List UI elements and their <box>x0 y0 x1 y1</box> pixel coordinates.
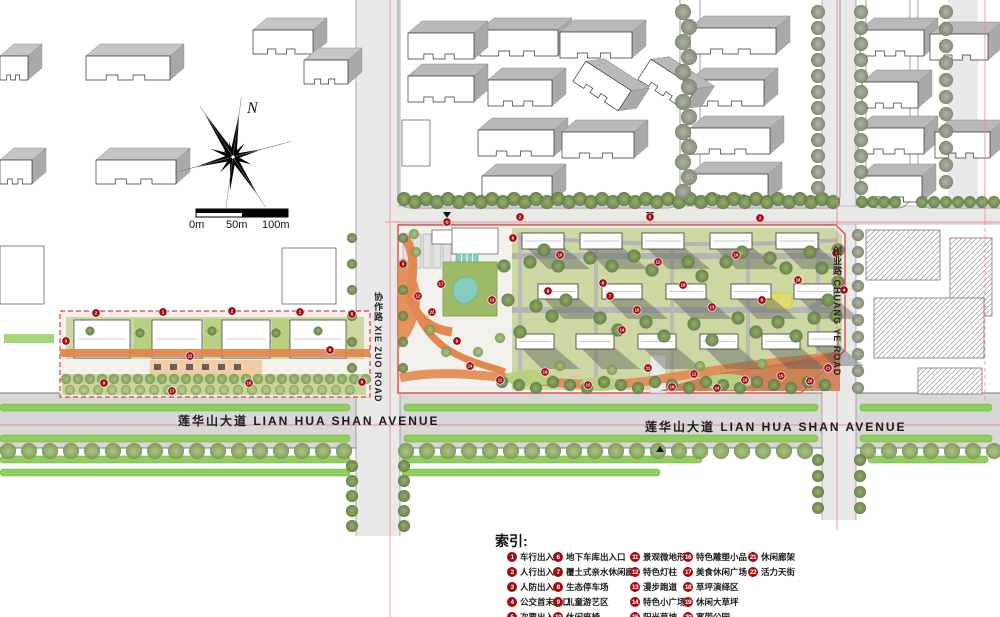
plan-marker: 10 <box>245 379 253 387</box>
road-label-lianhuashan-left: 莲华山大道 LIAN HUA SHAN AVENUE <box>178 412 440 429</box>
plan-marker: 6 <box>758 296 766 304</box>
road-label-xiezuo: 协作路 XIE ZUO ROAD <box>372 292 385 403</box>
svg-text:1: 1 <box>162 310 165 316</box>
svg-text:17: 17 <box>170 389 175 394</box>
plan-marker: 12 <box>654 258 662 266</box>
plan-marker: 7 <box>606 292 614 300</box>
plan-marker: 18 <box>794 276 802 284</box>
plan-marker: 17 <box>437 280 445 288</box>
svg-text:14: 14 <box>468 364 473 369</box>
svg-text:2: 2 <box>759 216 762 222</box>
svg-text:10: 10 <box>247 381 252 386</box>
plan-marker: 19 <box>541 368 549 376</box>
site-plan-canvas: 2121539172210681252312172291413610887121… <box>0 0 1000 617</box>
plan-marker: 10 <box>732 251 740 259</box>
plan-marker: 1 <box>296 308 304 316</box>
plan-marker: 5 <box>348 310 356 318</box>
svg-text:3: 3 <box>65 339 68 345</box>
plan-marker: 20 <box>806 377 814 385</box>
plan-marker: 15 <box>584 381 592 389</box>
plan-marker: 14 <box>618 326 626 334</box>
plan-marker: 13 <box>488 296 496 304</box>
svg-text:19: 19 <box>670 385 675 390</box>
site-plan-svg: 2121539172210681252312172291413610887121… <box>0 0 1000 617</box>
svg-text:1: 1 <box>446 220 449 226</box>
context-buildings-east <box>866 230 992 394</box>
svg-text:1: 1 <box>299 310 302 316</box>
plan-marker: 19 <box>668 383 676 391</box>
scale-bar <box>196 209 288 217</box>
svg-text:10: 10 <box>734 253 739 258</box>
svg-text:6: 6 <box>761 298 764 304</box>
svg-text:2: 2 <box>519 215 522 221</box>
plan-marker: 16 <box>679 281 687 289</box>
plan-marker: 8 <box>544 287 552 295</box>
svg-text:8: 8 <box>602 281 605 287</box>
svg-text:13: 13 <box>710 305 715 310</box>
svg-text:5: 5 <box>649 215 652 221</box>
plan-marker: 2 <box>756 214 764 222</box>
north-label: N <box>247 100 258 118</box>
plan-marker: 14 <box>466 362 474 370</box>
road-label-chuangye: 创业路 CHUANG YE ROAD <box>831 246 844 376</box>
plan-marker: 12 <box>414 292 422 300</box>
svg-text:11: 11 <box>498 378 503 383</box>
plan-marker: 5 <box>646 213 654 221</box>
svg-text:3: 3 <box>402 262 405 268</box>
svg-text:5: 5 <box>351 312 354 318</box>
svg-text:22: 22 <box>430 310 435 315</box>
svg-text:6: 6 <box>329 348 332 354</box>
svg-text:6: 6 <box>512 236 515 242</box>
plan-marker: 3 <box>399 260 407 268</box>
svg-text:12: 12 <box>692 372 697 377</box>
plan-marker: 2 <box>228 307 236 315</box>
plan-marker: 10 <box>556 251 564 259</box>
plan-marker: 9 <box>100 379 108 387</box>
plan-marker: 13 <box>708 303 716 311</box>
scale-label-100: 100m <box>262 219 290 231</box>
svg-text:22: 22 <box>188 354 193 359</box>
plan-marker: 15 <box>633 306 641 314</box>
plan-marker: 12 <box>690 370 698 378</box>
svg-text:12: 12 <box>656 260 661 265</box>
svg-text:16: 16 <box>681 283 686 288</box>
plan-marker: 22 <box>428 308 436 316</box>
compass-rose <box>175 98 291 209</box>
scale-label-0: 0m <box>189 219 204 231</box>
svg-text:15: 15 <box>586 383 591 388</box>
svg-text:2: 2 <box>95 311 98 317</box>
svg-text:17: 17 <box>439 282 444 287</box>
svg-text:15: 15 <box>635 308 640 313</box>
plan-marker: 22 <box>186 352 194 360</box>
plan-marker: 14 <box>713 384 721 392</box>
svg-text:18: 18 <box>796 278 801 283</box>
svg-text:11: 11 <box>646 366 651 371</box>
road-label-lianhuashan-right: 莲华山大道 LIAN HUA SHAN AVENUE <box>645 418 907 435</box>
svg-text:7: 7 <box>609 294 612 300</box>
plan-marker: 6 <box>326 346 334 354</box>
plan-marker: 19 <box>741 376 749 384</box>
svg-text:14: 14 <box>620 328 625 333</box>
plan-marker: 9 <box>453 337 461 345</box>
plan-marker: 6 <box>509 234 517 242</box>
svg-text:19: 19 <box>743 378 748 383</box>
plan-marker: 3 <box>62 337 70 345</box>
plan-marker: 11 <box>496 376 504 384</box>
svg-text:10: 10 <box>558 253 563 258</box>
svg-text:14: 14 <box>715 386 720 391</box>
svg-text:2: 2 <box>231 309 234 315</box>
svg-text:8: 8 <box>547 289 550 295</box>
scale-label-50: 50m <box>226 219 247 231</box>
svg-text:8: 8 <box>361 380 364 386</box>
svg-text:20: 20 <box>808 379 813 384</box>
svg-text:12: 12 <box>416 294 421 299</box>
plan-marker: 15 <box>777 372 785 380</box>
svg-text:9: 9 <box>456 339 459 345</box>
plan-marker: 17 <box>168 387 176 395</box>
plan-marker: 1 <box>159 308 167 316</box>
plan-marker: 8 <box>599 279 607 287</box>
svg-text:9: 9 <box>103 381 106 387</box>
svg-text:13: 13 <box>490 298 495 303</box>
svg-text:15: 15 <box>779 374 784 379</box>
plan-marker: 11 <box>644 364 652 372</box>
plan-marker: 8 <box>358 378 366 386</box>
svg-text:19: 19 <box>543 370 548 375</box>
plan-marker: 2 <box>92 309 100 317</box>
plan-marker: 2 <box>516 213 524 221</box>
